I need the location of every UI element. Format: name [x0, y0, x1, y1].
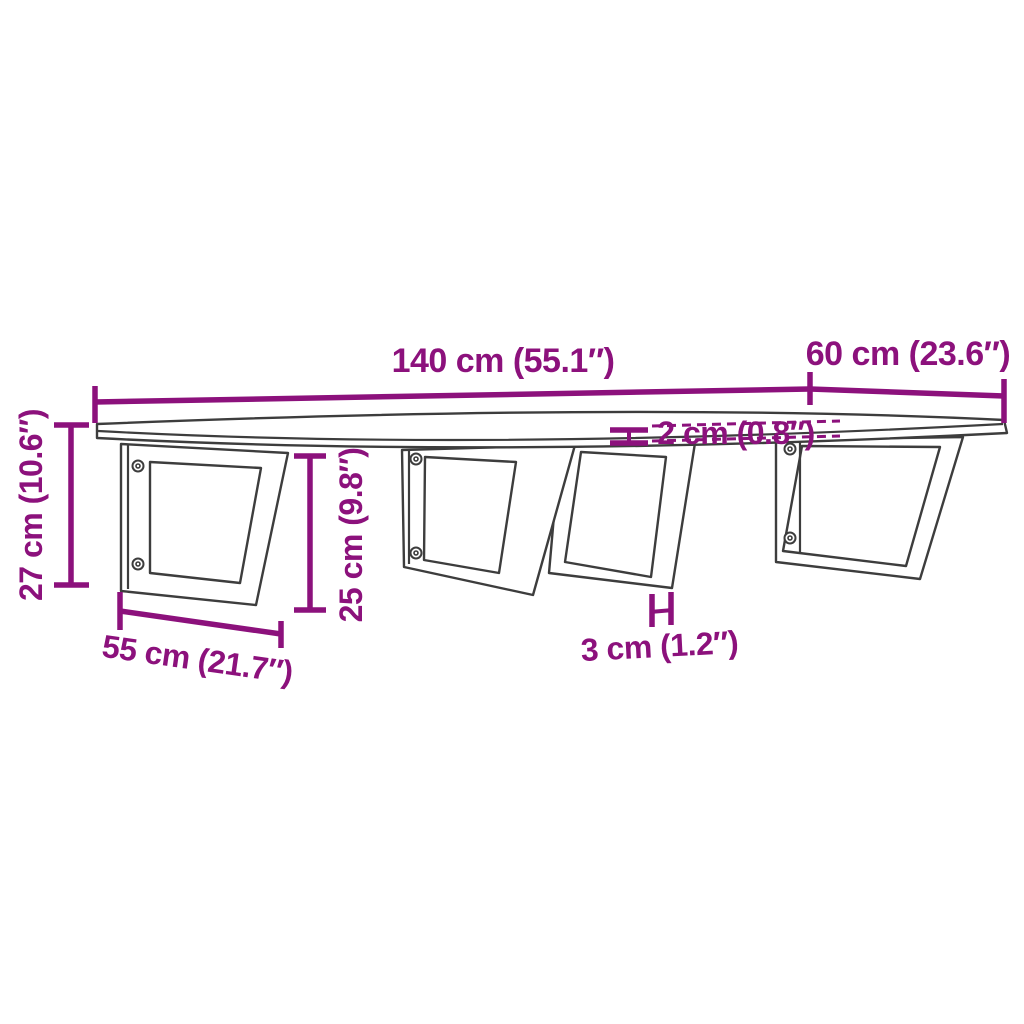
dimension-bar-width-label: 3 cm (1.2″)	[580, 624, 739, 668]
dimension-bracket-height: 25 cm (9.8″)	[294, 448, 369, 623]
dimension-bar-width-line	[650, 610, 673, 612]
bracket-2-opening	[424, 457, 516, 573]
dimension-length: 140 cm (55.1″)	[95, 342, 810, 423]
screw-hole-dot-icon	[788, 536, 792, 540]
dimension-total-height: 27 cm (10.6″)	[13, 409, 89, 601]
bracket-3	[549, 443, 695, 588]
dimension-bracket-depth-label: 55 cm (21.7″)	[100, 628, 295, 690]
dimension-bar-width: 3 cm (1.2″)	[580, 592, 739, 668]
dimension-length-line	[95, 389, 810, 402]
screw-hole-dot-icon	[136, 562, 140, 566]
dimension-length-label: 140 cm (55.1″)	[392, 342, 615, 380]
screw-hole-dot-icon	[136, 464, 140, 468]
dimension-depth-line	[810, 389, 1004, 396]
dimension-diagram: 140 cm (55.1″) 60 cm (23.6″) 27 cm (10.6…	[0, 0, 1024, 1024]
screw-hole-dot-icon	[414, 551, 418, 555]
screw-hole-dot-icon	[414, 457, 418, 461]
shelf-drawing: 140 cm (55.1″) 60 cm (23.6″) 27 cm (10.6…	[0, 0, 1024, 1024]
bracket-4	[776, 437, 963, 579]
bracket-1	[121, 444, 288, 605]
dimension-depth-label: 60 cm (23.6″)	[806, 335, 1010, 373]
dimension-bracket-depth: 55 cm (21.7″)	[100, 592, 295, 690]
dimension-bracket-height-label: 25 cm (9.8″)	[333, 448, 369, 623]
dimension-bracket-depth-line	[120, 611, 281, 634]
dimension-total-height-label: 27 cm (10.6″)	[13, 409, 49, 601]
bracket-1-opening	[150, 462, 261, 583]
dimension-board-thickness-label: 2 cm (0.8″)	[657, 415, 814, 451]
bracket-3-opening	[565, 452, 666, 577]
dimension-depth: 60 cm (23.6″)	[806, 335, 1010, 423]
